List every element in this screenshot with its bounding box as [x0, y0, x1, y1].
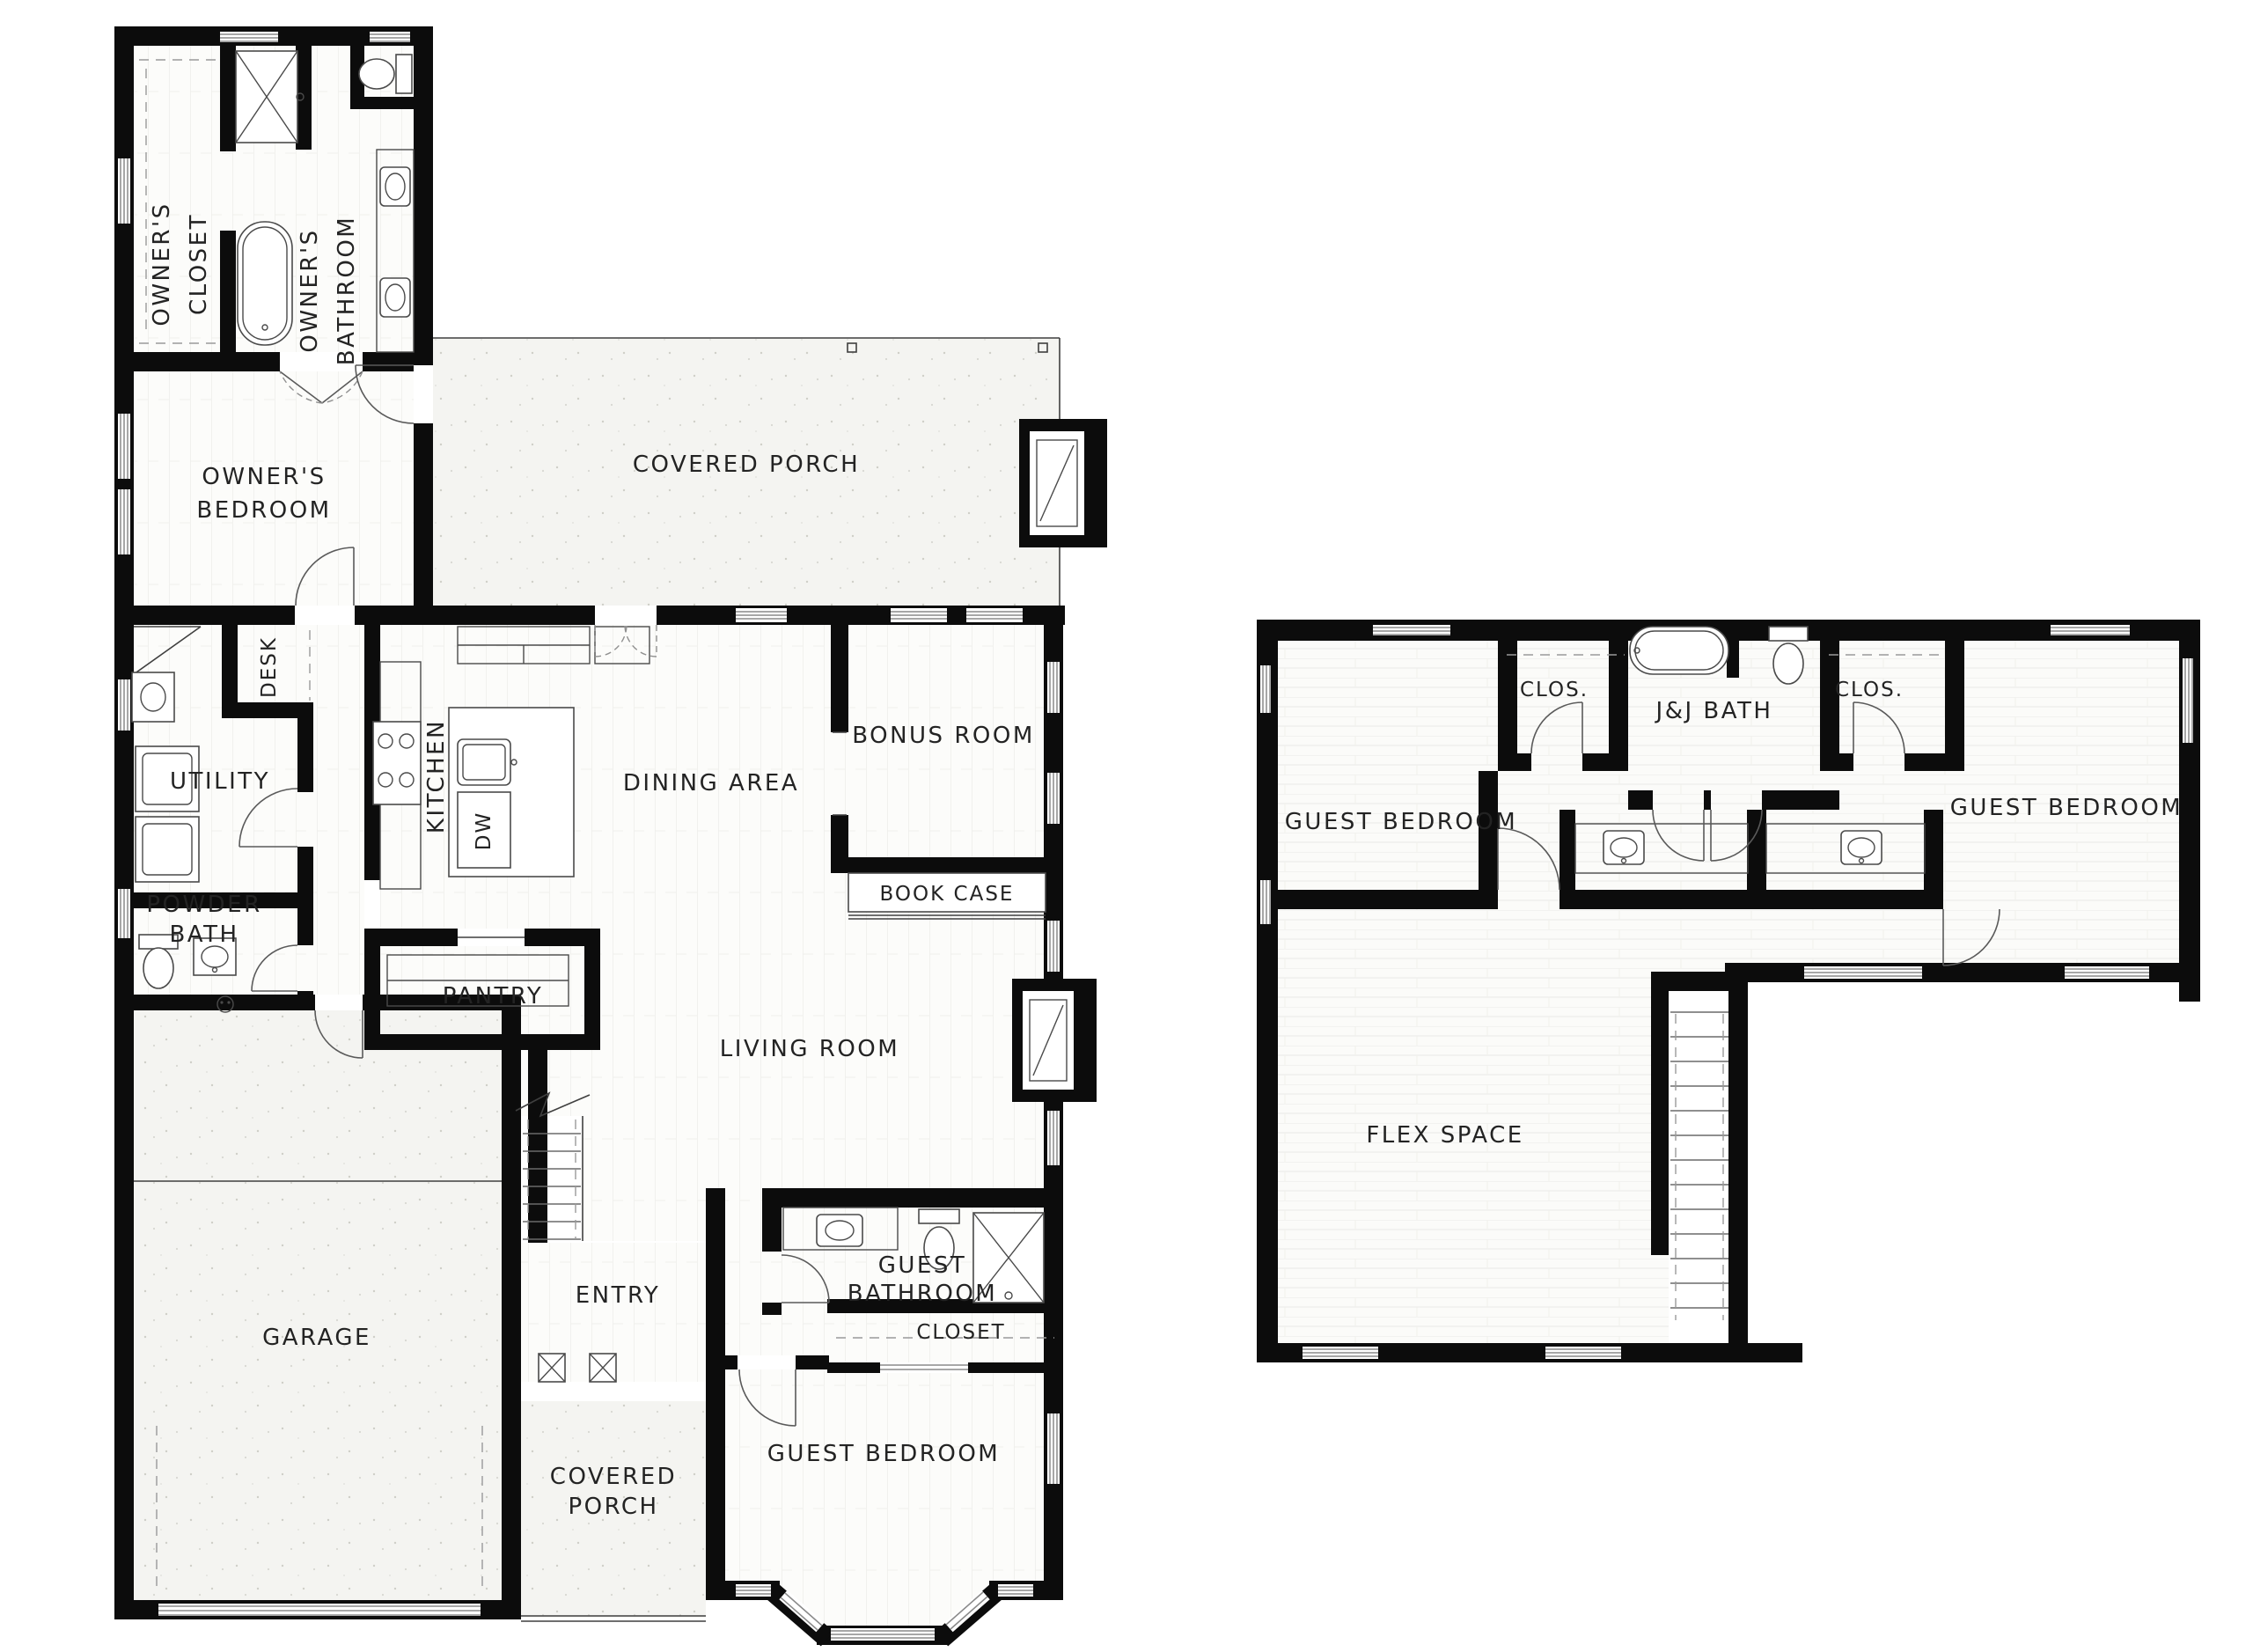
- label-dining-area: DINING AREA: [623, 770, 799, 797]
- window: [1047, 921, 1060, 972]
- label-dw: DW: [473, 811, 495, 850]
- label-garage: GARAGE: [262, 1325, 371, 1351]
- window: [1047, 662, 1060, 713]
- window: [1303, 1347, 1378, 1359]
- label-owners-closet-1: OWNER'S: [149, 202, 175, 326]
- label-covered-porch: COVERED PORCH: [633, 452, 860, 478]
- owners-shower: [236, 51, 304, 143]
- utility-sink: [132, 672, 174, 722]
- label-jj-bath: J&J BATH: [1655, 698, 1773, 724]
- window: [118, 489, 130, 554]
- window: [118, 889, 130, 938]
- window: [2051, 625, 2130, 635]
- label-guest-bedroom-right: GUEST BEDROOM: [1950, 795, 2183, 821]
- window: [1373, 625, 1450, 635]
- window: [966, 608, 1023, 622]
- label-guest-bedroom: GUEST BEDROOM: [767, 1441, 1000, 1467]
- label-front-porch-1: COVERED: [550, 1464, 677, 1490]
- label-owners-bathroom-2: BATHROOM: [334, 216, 360, 365]
- owners-tub: [238, 222, 292, 345]
- window: [1047, 773, 1060, 824]
- label-living-room: LIVING ROOM: [720, 1036, 899, 1062]
- label-clos-right: CLOS.: [1835, 679, 1904, 701]
- window: [891, 608, 947, 622]
- kitchen-island: [449, 708, 574, 877]
- window: [736, 608, 787, 622]
- living-fireplace: [1023, 991, 1074, 1090]
- window: [1545, 1347, 1621, 1359]
- window: [1804, 966, 1922, 979]
- label-flex-space: FLEX SPACE: [1366, 1122, 1523, 1149]
- window: [1047, 1111, 1060, 1165]
- kitchen-range: [373, 722, 421, 804]
- floor1-main-level: OWNER'S CLOSET OWNER'S BATHROOM OWNER'S …: [114, 26, 1107, 1645]
- window: [1260, 665, 1271, 713]
- label-entry: ENTRY: [576, 1282, 661, 1309]
- label-guest-closet: CLOSET: [916, 1321, 1005, 1344]
- floor2-upper-level: GUEST BEDROOM CLOS. J&J BATH CLOS. GUEST…: [1257, 620, 2200, 1362]
- window: [118, 158, 130, 224]
- window: [2065, 966, 2149, 979]
- label-utility: UTILITY: [170, 768, 270, 795]
- label-bonus-room: BONUS ROOM: [852, 723, 1035, 749]
- window: [118, 679, 130, 731]
- window: [2183, 658, 2193, 743]
- porch-fireplace: [1030, 431, 1084, 535]
- window: [220, 32, 278, 42]
- window: [1047, 1413, 1060, 1484]
- label-guest-bathroom-1: GUEST: [878, 1252, 967, 1279]
- label-guest-bedroom-left: GUEST BEDROOM: [1285, 809, 1517, 835]
- label-owners-closet-2: CLOSET: [186, 213, 212, 315]
- stairwell2-floor: [1669, 991, 1728, 1343]
- window: [1260, 880, 1271, 924]
- label-owners-bathroom-1: OWNER'S: [297, 228, 323, 352]
- floor-plan-drawing: OWNER'S CLOSET OWNER'S BATHROOM OWNER'S …: [0, 0, 2253, 1652]
- window: [370, 32, 410, 42]
- floor-plan-page: OWNER'S CLOSET OWNER'S BATHROOM OWNER'S …: [0, 0, 2253, 1652]
- label-powder-bath-2: BATH: [169, 921, 239, 948]
- label-owners-bedroom-1: OWNER'S: [202, 464, 326, 490]
- jj-tub: [1630, 627, 1728, 674]
- label-pantry: PANTRY: [443, 983, 543, 1010]
- garage-floor: [134, 1010, 502, 1600]
- label-guest-bathroom-2: BATHROOM: [848, 1281, 997, 1307]
- label-powder-bath-1: POWDER: [146, 892, 261, 918]
- label-desk: DESK: [258, 636, 281, 698]
- label-owners-bedroom-2: BEDROOM: [196, 497, 331, 524]
- label-clos-left: CLOS.: [1520, 679, 1589, 701]
- label-front-porch-2: PORCH: [568, 1494, 658, 1520]
- label-book-case: BOOK CASE: [880, 883, 1015, 906]
- label-kitchen: KITCHEN: [423, 719, 450, 833]
- window: [118, 414, 130, 479]
